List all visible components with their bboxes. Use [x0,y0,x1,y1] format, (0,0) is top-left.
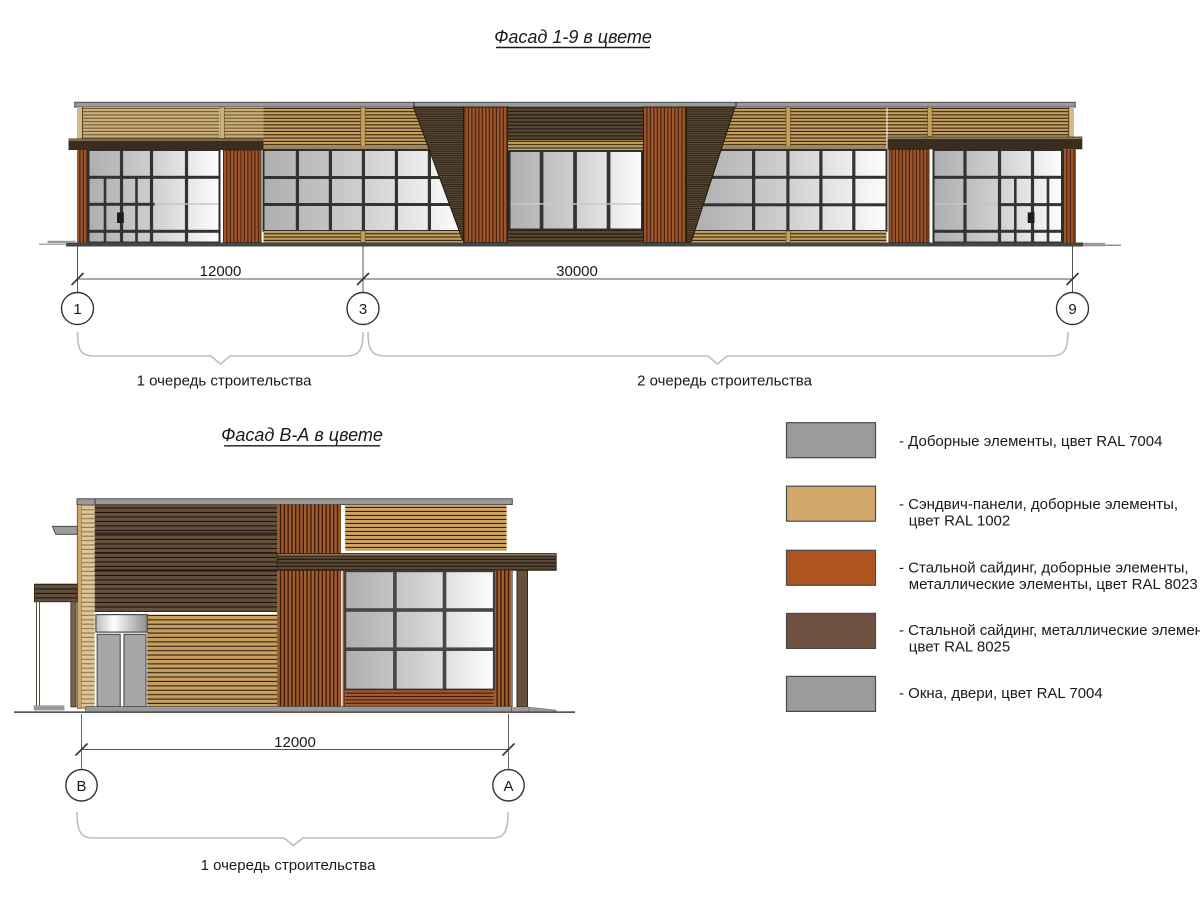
svg-text:А: А [503,778,513,795]
svg-text:30000: 30000 [556,263,598,280]
svg-text:- Доборные элементы, цвет RAL: - Доборные элементы, цвет RAL 7004 [899,433,1162,450]
svg-text:1 очередь строительства: 1 очередь строительства [201,857,376,874]
svg-text:3: 3 [359,301,367,318]
svg-text:1: 1 [73,301,81,318]
svg-text:9: 9 [1068,301,1076,318]
svg-text:2 очередь строительства: 2 очередь строительства [637,373,812,390]
svg-text:- Сэндвич-панели, доборные эле: - Сэндвич-панели, доборные элементы, [899,496,1178,513]
svg-text:- Окна, двери, цвет RAL 7004: - Окна, двери, цвет RAL 7004 [899,685,1103,702]
svg-text:12000: 12000 [200,263,242,280]
svg-text:1 очередь строительства: 1 очередь строительства [137,373,312,390]
svg-text:Фасад В-А в цвете: Фасад В-А в цвете [221,425,383,445]
svg-text:Фасад 1-9 в цвете: Фасад 1-9 в цвете [494,27,652,47]
svg-text:В: В [76,778,86,795]
svg-text:- Стальной сайдинг, металличес: - Стальной сайдинг, металлические элемен… [899,622,1200,639]
svg-text:12000: 12000 [274,734,316,751]
svg-text:- Стальной сайдинг, доборные э: - Стальной сайдинг, доборные элементы, [899,559,1189,576]
svg-text:цвет RAL 8025: цвет RAL 8025 [909,639,1010,656]
svg-text:цвет RAL 1002: цвет RAL 1002 [909,513,1010,530]
svg-text:металлические элементы, цвет R: металлические элементы, цвет RAL 8023 [909,576,1198,593]
